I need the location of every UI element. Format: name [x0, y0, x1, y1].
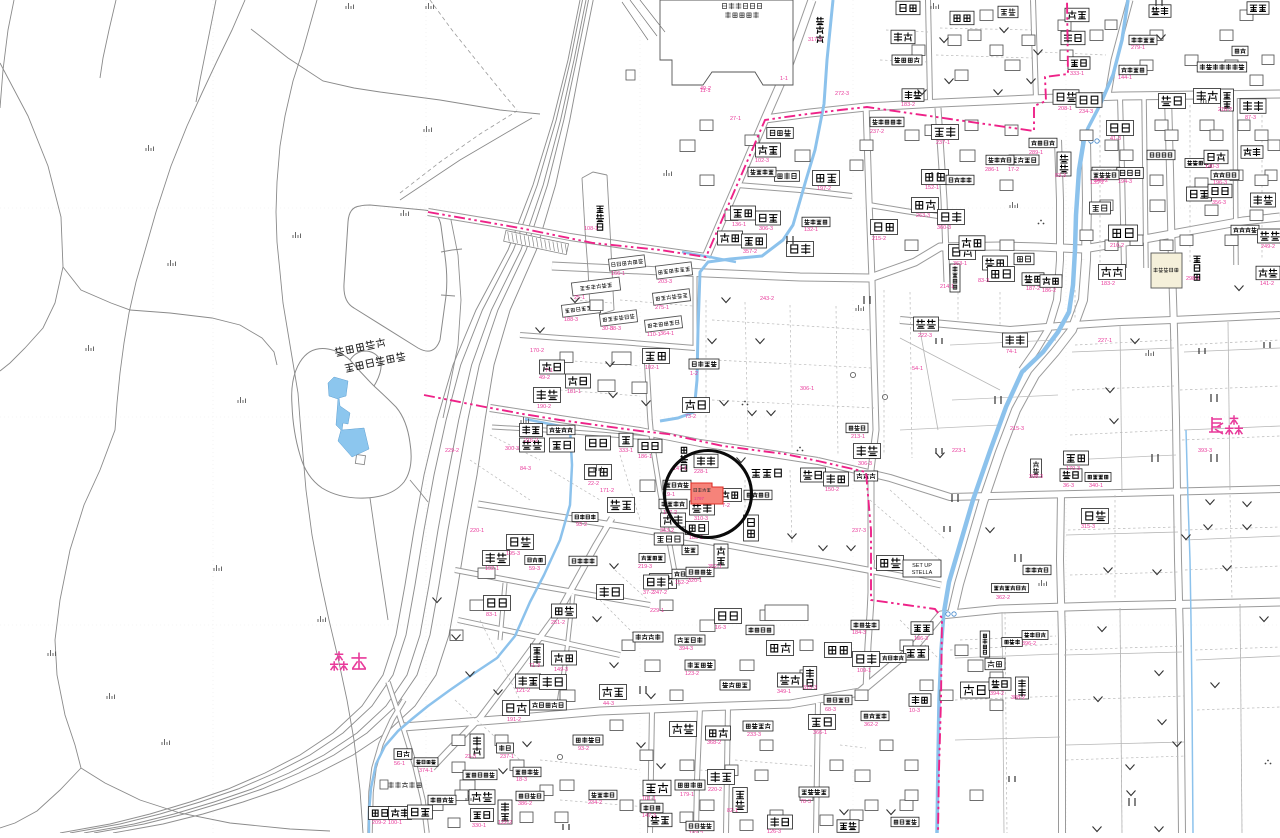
svg-text:298-1: 298-1 [1186, 276, 1200, 282]
svg-text:333-1: 333-1 [619, 448, 633, 454]
svg-text:386-2: 386-2 [518, 801, 532, 807]
svg-text:352-1: 352-1 [708, 564, 722, 570]
svg-text:121-2: 121-2 [516, 688, 530, 694]
svg-text:183-2: 183-2 [901, 102, 915, 108]
svg-text:215-2: 215-2 [872, 236, 886, 242]
svg-text:286-1: 286-1 [985, 167, 999, 173]
svg-text:368-2: 368-2 [707, 740, 721, 746]
svg-text:73-2: 73-2 [685, 414, 696, 420]
svg-text:18-3: 18-3 [516, 777, 527, 783]
svg-text:170-3: 170-3 [1066, 466, 1080, 472]
svg-text:STELLA: STELLA [912, 570, 933, 576]
svg-text:88-3: 88-3 [610, 326, 621, 332]
svg-text:23-3: 23-3 [465, 754, 476, 760]
svg-text:210-2: 210-2 [1110, 243, 1124, 249]
svg-text:144-1: 144-1 [1118, 75, 1132, 81]
svg-text:135-2: 135-2 [1090, 180, 1104, 186]
svg-text:251-2: 251-2 [551, 620, 565, 626]
svg-text:300-3: 300-3 [505, 446, 519, 452]
svg-text:320-1: 320-1 [688, 578, 702, 584]
svg-text:41-3: 41-3 [1110, 136, 1121, 142]
svg-text:16-3: 16-3 [715, 625, 726, 631]
svg-text:208-1: 208-1 [1058, 106, 1072, 112]
svg-text:49-2: 49-2 [700, 86, 711, 92]
svg-text:220-2: 220-2 [708, 787, 722, 793]
svg-text:388-2: 388-2 [1011, 695, 1025, 701]
svg-text:363-1: 363-1 [953, 261, 967, 267]
svg-text:188-3: 188-3 [564, 317, 578, 323]
svg-text:215-3: 215-3 [1010, 426, 1024, 432]
svg-text:7-1: 7-1 [545, 368, 553, 374]
svg-text:171-2: 171-2 [600, 488, 614, 494]
svg-text:209-2: 209-2 [372, 820, 386, 826]
svg-text:340-1: 340-1 [1089, 483, 1103, 489]
svg-text:187-2: 187-2 [1026, 286, 1040, 292]
svg-text:84-3: 84-3 [520, 466, 531, 472]
svg-text:132-1: 132-1 [804, 227, 818, 233]
svg-text:150-2: 150-2 [825, 487, 839, 493]
svg-text:1-2: 1-2 [690, 371, 698, 377]
svg-text:87-3: 87-3 [1245, 115, 1256, 121]
svg-text:362-2: 362-2 [864, 722, 878, 728]
svg-text:184-3: 184-3 [852, 630, 866, 636]
svg-text:10-3: 10-3 [909, 708, 920, 714]
svg-text:186-2: 186-2 [1042, 288, 1056, 294]
svg-text:36-3: 36-3 [1063, 483, 1074, 489]
svg-text:374-1: 374-1 [419, 768, 433, 774]
svg-text:194-3: 194-3 [1118, 179, 1132, 185]
svg-text:186-3: 186-3 [914, 636, 928, 642]
svg-text:56-1: 56-1 [394, 761, 405, 767]
svg-text:SET UP: SET UP [912, 563, 932, 569]
svg-text:179-1: 179-1 [680, 792, 694, 798]
svg-text:54-1: 54-1 [912, 366, 923, 372]
svg-text:152-1: 152-1 [925, 185, 939, 191]
svg-text:396-2: 396-2 [1022, 641, 1036, 647]
svg-text:349-1: 349-1 [777, 689, 791, 695]
svg-text:195-3: 195-3 [506, 551, 520, 557]
svg-text:263-3: 263-3 [916, 213, 930, 219]
svg-text:122-2: 122-2 [498, 820, 512, 826]
svg-text:78-3: 78-3 [800, 799, 811, 805]
svg-text:208-3: 208-3 [1029, 474, 1043, 480]
svg-text:289-1: 289-1 [1029, 150, 1043, 156]
svg-text:203-3: 203-3 [658, 279, 672, 285]
svg-text:149-3: 149-3 [554, 667, 568, 673]
svg-text:222-3: 222-3 [918, 333, 932, 339]
svg-text:356-3: 356-3 [1212, 200, 1226, 206]
svg-text:22-2: 22-2 [588, 481, 599, 487]
svg-text:93-2: 93-2 [576, 522, 587, 528]
svg-text:228-1: 228-1 [694, 469, 708, 475]
svg-text:147-3: 147-3 [642, 813, 656, 819]
svg-text:83-3: 83-3 [1055, 173, 1066, 179]
svg-text:213-1: 213-1 [851, 434, 865, 440]
svg-text:279-1: 279-1 [1131, 45, 1145, 51]
svg-text:219-3: 219-3 [638, 564, 652, 570]
svg-text:272-3: 272-3 [835, 91, 849, 97]
svg-text:1797: 1797 [694, 496, 705, 501]
svg-text:357-2: 357-2 [743, 249, 757, 255]
svg-text:333-1: 333-1 [1070, 71, 1084, 77]
svg-text:243-2: 243-2 [760, 296, 774, 302]
svg-text:140-3: 140-3 [1205, 164, 1219, 170]
svg-text:59-3: 59-3 [529, 566, 540, 572]
svg-text:247-2: 247-2 [653, 590, 667, 596]
svg-text:237-1: 237-1 [500, 754, 514, 760]
svg-text:17-2: 17-2 [1008, 167, 1019, 173]
svg-text:102-3: 102-3 [755, 158, 769, 164]
svg-text:123-2: 123-2 [685, 671, 699, 677]
svg-text:394-3: 394-3 [679, 646, 693, 652]
svg-text:170-2: 170-2 [530, 348, 544, 354]
svg-text:190-2: 190-2 [537, 404, 551, 410]
svg-text:152-2: 152-2 [675, 580, 689, 586]
svg-text:306-1: 306-1 [800, 386, 814, 392]
svg-text:366-1: 366-1 [813, 730, 827, 736]
svg-text:234-3: 234-3 [1079, 109, 1093, 115]
svg-text:233-3: 233-3 [747, 732, 761, 738]
svg-text:68-3: 68-3 [825, 707, 836, 713]
svg-text:364-1: 364-1 [660, 331, 674, 337]
svg-text:71-3: 71-3 [529, 663, 540, 669]
svg-text:109-1: 109-1 [857, 668, 871, 674]
svg-text:393-3: 393-3 [1198, 448, 1212, 454]
svg-text:100-1: 100-1 [388, 820, 402, 826]
svg-text:330-1: 330-1 [472, 823, 486, 829]
svg-text:49-2: 49-2 [539, 375, 550, 381]
svg-text:237-3: 237-3 [852, 528, 866, 534]
svg-text:227-1: 227-1 [1098, 338, 1112, 344]
svg-text:44-3: 44-3 [603, 701, 614, 707]
svg-text:223-1: 223-1 [952, 448, 966, 454]
svg-text:249-2: 249-2 [1261, 244, 1275, 250]
svg-text:1-1: 1-1 [780, 76, 788, 82]
svg-text:197-2: 197-2 [817, 186, 831, 192]
svg-text:360-3: 360-3 [937, 225, 951, 231]
svg-text:83-1: 83-1 [486, 612, 497, 618]
svg-text:136-1: 136-1 [732, 222, 746, 228]
svg-text:315-3: 315-3 [803, 685, 817, 691]
svg-text:186-1: 186-1 [638, 454, 652, 460]
svg-text:306-3: 306-3 [858, 461, 872, 467]
svg-text:237-2: 237-2 [870, 129, 884, 135]
svg-text:220-1: 220-1 [470, 528, 484, 534]
svg-text:237-1: 237-1 [936, 140, 950, 146]
svg-text:37-2: 37-2 [643, 590, 654, 596]
svg-text:93-2: 93-2 [578, 746, 589, 752]
svg-text:315-3: 315-3 [1081, 524, 1095, 530]
svg-text:216-2: 216-2 [1218, 107, 1232, 113]
svg-text:310-3: 310-3 [694, 516, 708, 522]
svg-text:317-2: 317-2 [808, 37, 822, 43]
svg-text:191-2: 191-2 [507, 717, 521, 723]
svg-text:196-3: 196-3 [1213, 180, 1227, 186]
svg-text:102-1: 102-1 [645, 365, 659, 371]
svg-text:141-2: 141-2 [1260, 281, 1274, 287]
svg-text:108-1: 108-1 [584, 226, 598, 232]
svg-text:214-1: 214-1 [940, 284, 954, 290]
svg-text:82-1: 82-1 [727, 808, 738, 814]
svg-text:166-1: 166-1 [611, 271, 625, 277]
svg-text:394-2: 394-2 [990, 691, 1004, 697]
svg-text:101-1: 101-1 [642, 796, 656, 802]
svg-text:183-2: 183-2 [1101, 281, 1115, 287]
svg-text:192-1: 192-1 [485, 566, 499, 572]
svg-text:362-2: 362-2 [996, 595, 1010, 601]
svg-text:74-1: 74-1 [1006, 349, 1017, 355]
svg-text:27-1: 27-1 [730, 116, 741, 122]
svg-text:216-2: 216-2 [524, 438, 538, 444]
svg-text:110-1: 110-1 [647, 332, 661, 338]
svg-text:363-2: 363-2 [660, 528, 674, 534]
svg-text:229-2: 229-2 [445, 448, 459, 454]
svg-text:234-2: 234-2 [588, 800, 602, 806]
svg-text:126-3: 126-3 [767, 829, 781, 833]
svg-text:275-1: 275-1 [655, 305, 669, 311]
svg-text:229-1: 229-1 [650, 608, 664, 614]
svg-text:83-3: 83-3 [978, 278, 989, 284]
svg-text:181-1: 181-1 [567, 389, 581, 395]
svg-text:306-3: 306-3 [759, 226, 773, 232]
